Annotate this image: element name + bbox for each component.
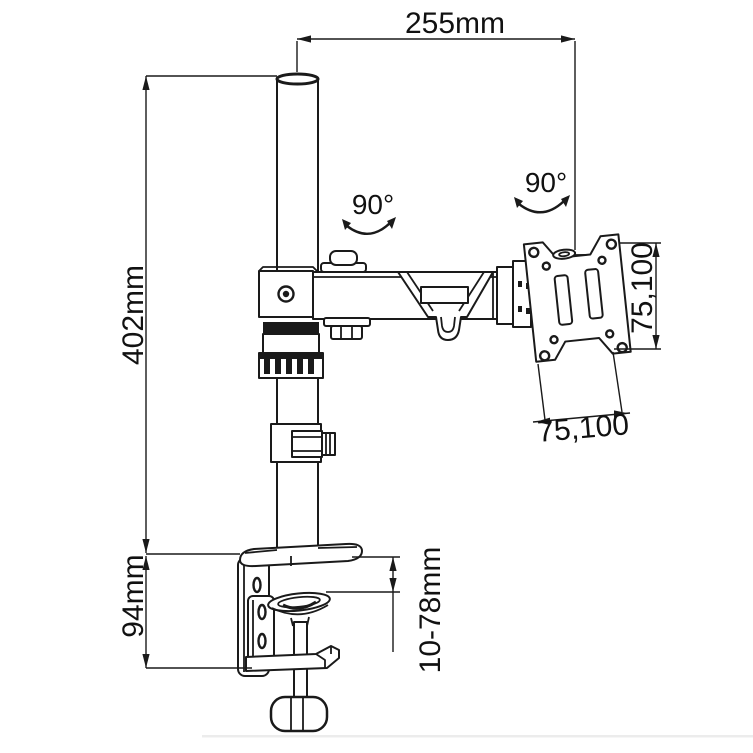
desk-clamp <box>238 544 362 731</box>
dimension-pole-height: 402mm <box>117 76 277 554</box>
monitor-arm-diagram: 255mm 402mm 94mm 10-78mm 75,100 <box>0 0 753 753</box>
vesa-hole-75 <box>550 336 558 344</box>
pole-collar-block <box>259 267 317 317</box>
vesa-horizontal-label: 75,100 <box>536 408 630 449</box>
rotation-annotation-arm: 90° <box>342 189 396 234</box>
locking-ring <box>263 322 319 334</box>
clamp-height-label: 94mm <box>117 554 150 637</box>
rotation-arrow-arc <box>519 201 564 212</box>
rotation-arrow-arc <box>347 223 390 234</box>
faint-baseline <box>202 735 753 738</box>
pivot-bolt <box>330 251 357 265</box>
pivot-nut <box>324 318 370 339</box>
arm-rotation-label: 90° <box>352 189 394 220</box>
pole-height-label: 402mm <box>117 265 150 365</box>
vesa-rotation-label: 90° <box>525 167 567 198</box>
vesa-hole-100 <box>606 239 616 249</box>
vesa-hole-75 <box>542 262 550 270</box>
dimension-clamp-height: 94mm <box>117 554 252 668</box>
vesa-hole-75 <box>606 330 614 338</box>
dimension-desk-thickness: 10-78mm <box>326 547 447 674</box>
clamp-pad <box>267 590 330 626</box>
dimension-vesa-horizontal: 75,100 <box>533 352 630 449</box>
rotation-annotation-vesa: 90° <box>514 167 570 212</box>
collar-handle <box>292 431 335 457</box>
pole-adjustment-rings <box>259 322 323 378</box>
vesa-plate <box>524 234 631 361</box>
vesa-hole-75 <box>598 256 606 264</box>
desk-thickness-label: 10-78mm <box>414 547 447 674</box>
clamp-knob <box>271 697 327 731</box>
vesa-hole-100 <box>529 247 539 257</box>
desk-base-plate <box>240 544 362 566</box>
arm-length-label: 255mm <box>405 7 505 40</box>
knurled-ring <box>259 353 323 378</box>
dimension-arm-length: 255mm <box>297 7 575 250</box>
vesa-hole-100 <box>617 343 627 353</box>
technical-drawing-canvas: 255mm 402mm 94mm 10-78mm 75,100 <box>0 0 753 753</box>
height-adjust-collar <box>271 424 335 462</box>
vesa-hole-100 <box>540 351 550 361</box>
vesa-vertical-label: 75,100 <box>626 242 659 334</box>
arm-slot <box>421 287 468 303</box>
